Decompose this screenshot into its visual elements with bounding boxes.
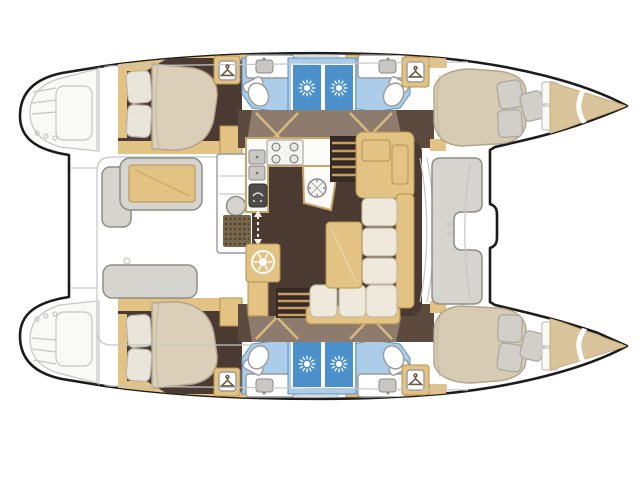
catamaran-floorplan bbox=[0, 0, 640, 480]
grill bbox=[227, 197, 246, 216]
shower-stalls bbox=[288, 58, 356, 114]
sofa-cushion bbox=[339, 285, 366, 317]
saloon-table bbox=[326, 222, 362, 288]
stove-burner bbox=[272, 155, 280, 163]
sofa-cushion bbox=[362, 228, 397, 256]
saloon bbox=[246, 132, 422, 324]
stove-burner bbox=[290, 155, 298, 163]
pillow bbox=[496, 79, 524, 109]
stove bbox=[267, 140, 303, 165]
stairs-to-port-hull bbox=[330, 136, 358, 182]
stove-burner bbox=[272, 143, 280, 151]
round-sink bbox=[308, 179, 326, 197]
floorplan-stage: Catamaran yacht interior layout — top-vi… bbox=[0, 0, 640, 480]
sofa-cushion bbox=[366, 285, 397, 317]
sofa-cushion bbox=[362, 198, 397, 226]
aft-cabin-bed bbox=[126, 64, 217, 150]
sofa-cushion bbox=[310, 285, 337, 317]
pillow bbox=[126, 104, 152, 138]
pillow bbox=[497, 109, 522, 137]
teak-grate bbox=[223, 215, 251, 247]
sofa-back bbox=[396, 194, 414, 308]
stove-burner bbox=[290, 143, 298, 151]
chart-table-cabinet bbox=[356, 132, 414, 198]
oven bbox=[249, 184, 267, 207]
cockpit-table bbox=[129, 165, 195, 202]
cockpit-aft-bench bbox=[103, 265, 197, 298]
pillow bbox=[126, 70, 153, 104]
sink bbox=[256, 60, 273, 73]
sofa-cushion bbox=[362, 258, 397, 284]
